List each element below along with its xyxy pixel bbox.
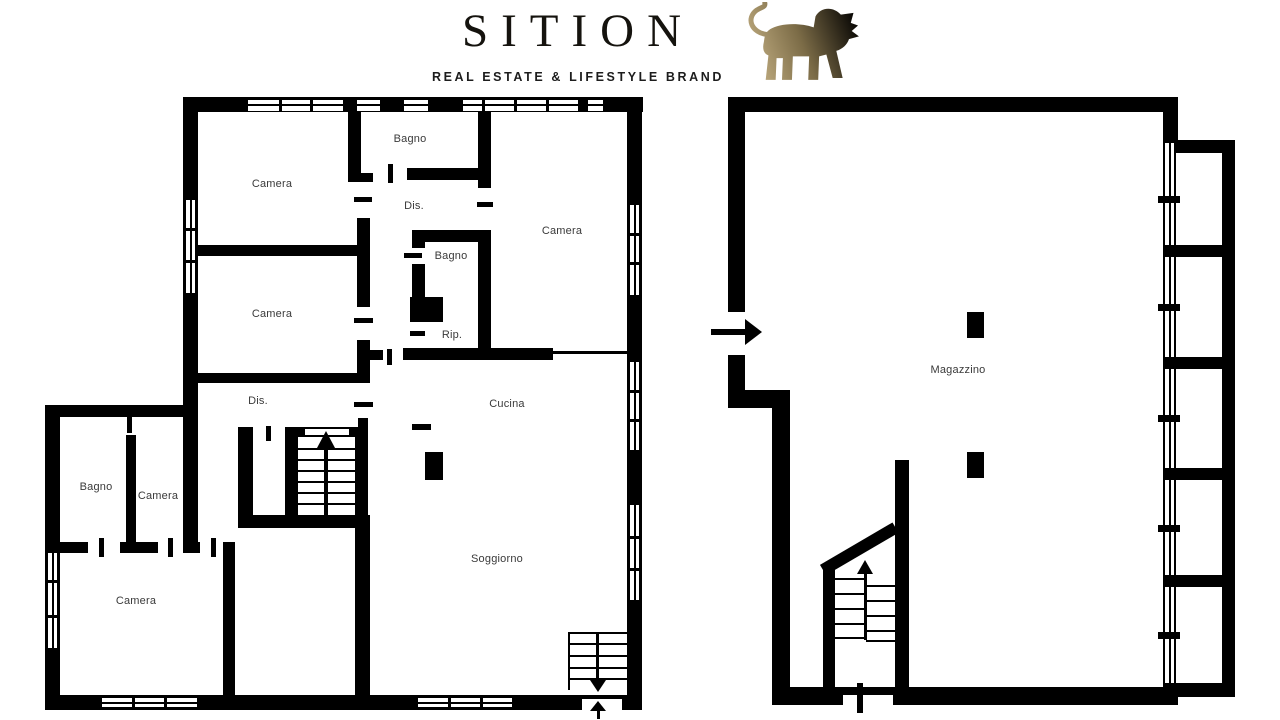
wall — [772, 408, 790, 705]
stair-tread — [835, 578, 866, 580]
pillar — [967, 452, 984, 478]
window-tick — [1158, 632, 1180, 639]
entrance-arrow-shaft — [711, 329, 745, 335]
window-tick — [1158, 304, 1180, 311]
window-tick — [1158, 415, 1180, 422]
wall — [1163, 575, 1235, 587]
wall — [728, 97, 1178, 112]
entrance-arrow — [745, 319, 762, 345]
stair-tread — [866, 640, 895, 642]
stair-tread — [866, 615, 895, 617]
wall — [1163, 97, 1178, 143]
wall — [895, 460, 909, 692]
wall — [1174, 143, 1176, 683]
stair-tread — [835, 637, 866, 639]
floorplan-right: Magazzino — [0, 0, 1280, 720]
wall — [728, 355, 745, 392]
door-opening — [843, 695, 893, 705]
stairs-up-arrow — [857, 560, 873, 574]
room-label-magazzino: Magazzino — [931, 364, 986, 376]
window-tick — [1158, 196, 1180, 203]
window-tick — [1158, 525, 1180, 532]
stair-tread — [866, 585, 895, 587]
wall — [1222, 140, 1235, 697]
pillar — [967, 312, 984, 338]
stair-tread — [866, 600, 895, 602]
wall — [1163, 357, 1235, 369]
stair-tread — [835, 593, 866, 595]
wall — [728, 97, 745, 312]
wall — [728, 390, 790, 408]
floorplan-canvas: SITION REAL ESTATE & LIFESTYLE BRAND Cam… — [0, 0, 1280, 720]
stairs-up-arrow-shaft — [864, 574, 867, 634]
wall — [823, 566, 835, 692]
wall — [1169, 143, 1171, 683]
door-marker — [857, 683, 863, 713]
stair-tread — [866, 630, 895, 632]
wall — [1163, 468, 1235, 480]
wall — [1163, 683, 1235, 697]
stair-tread — [835, 608, 866, 610]
wall — [1163, 245, 1235, 257]
stair-tread — [835, 623, 866, 625]
